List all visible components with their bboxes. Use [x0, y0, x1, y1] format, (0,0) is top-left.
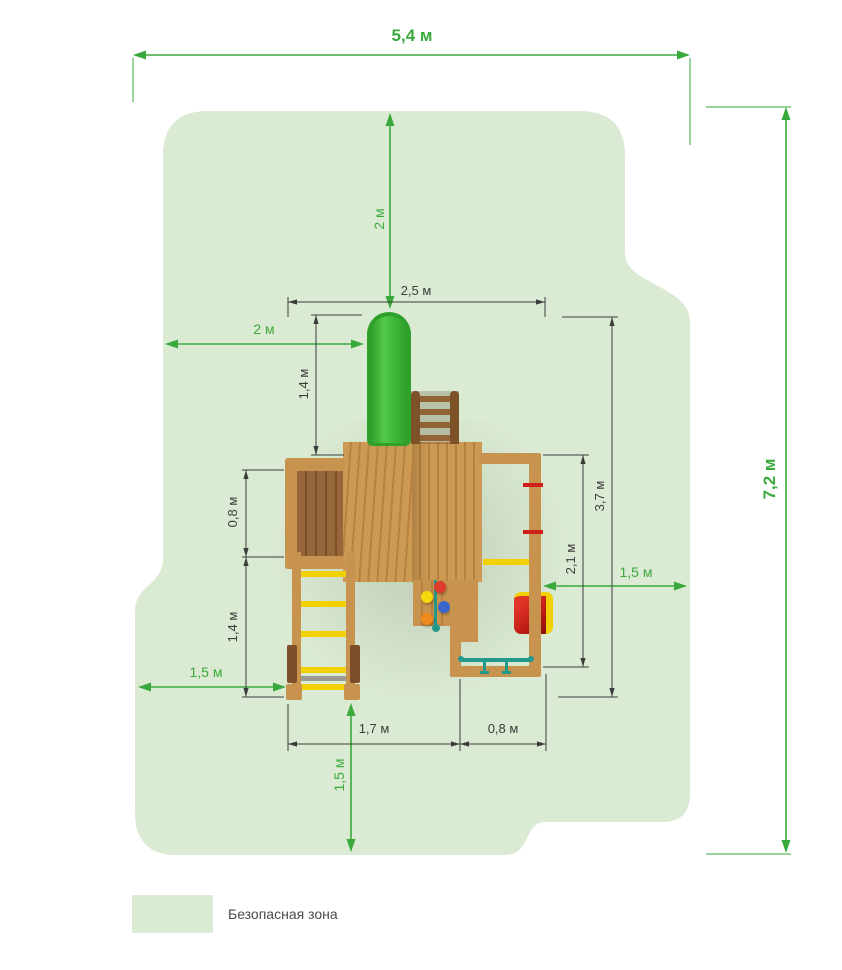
dim-slide-length	[311, 315, 362, 455]
legend-label: Безопасная зона	[228, 906, 338, 922]
dim-label-total-height: 7,2 м	[762, 449, 778, 509]
dim-footprint	[288, 674, 546, 751]
dim-label-clearance-top: 2 м	[371, 189, 387, 249]
plan-diagram: 5,4 м 7,2 м 2 м 2,5 м 2 м 1,4 м 0,8 м 1,…	[0, 0, 842, 970]
dim-label-footprint-left: 1,7 м	[344, 721, 404, 737]
dim-label-swing-depth: 2,1 м	[563, 529, 579, 589]
dim-label-clearance-bottom: 1,5 м	[331, 745, 347, 805]
dim-clearance-left	[165, 340, 364, 349]
dim-label-ramp-depth: 0,8 м	[225, 482, 241, 542]
dim-label-total-width: 5,4 м	[382, 28, 442, 44]
dim-clearance-left-bottom	[138, 683, 286, 692]
dim-ramp-depth	[242, 470, 284, 557]
dim-structure-width	[288, 297, 545, 317]
dim-structure-depth	[558, 317, 618, 697]
dimension-layer	[0, 0, 842, 970]
dim-ladder-length	[242, 557, 284, 697]
dim-label-ladder-length: 1,4 м	[225, 597, 241, 657]
legend-swatch	[132, 895, 213, 933]
dim-label-slide-length: 1,4 м	[296, 354, 312, 414]
dim-label-clearance-right: 1,5 м	[606, 564, 666, 580]
dim-label-structure-width: 2,5 м	[386, 283, 446, 299]
dim-label-footprint-right: 0,8 м	[473, 721, 533, 737]
dim-label-clearance-left: 2 м	[234, 321, 294, 337]
dim-total-width	[133, 51, 690, 146]
dim-label-structure-depth: 3,7 м	[592, 466, 608, 526]
dim-label-clearance-left-bottom: 1,5 м	[176, 664, 236, 680]
